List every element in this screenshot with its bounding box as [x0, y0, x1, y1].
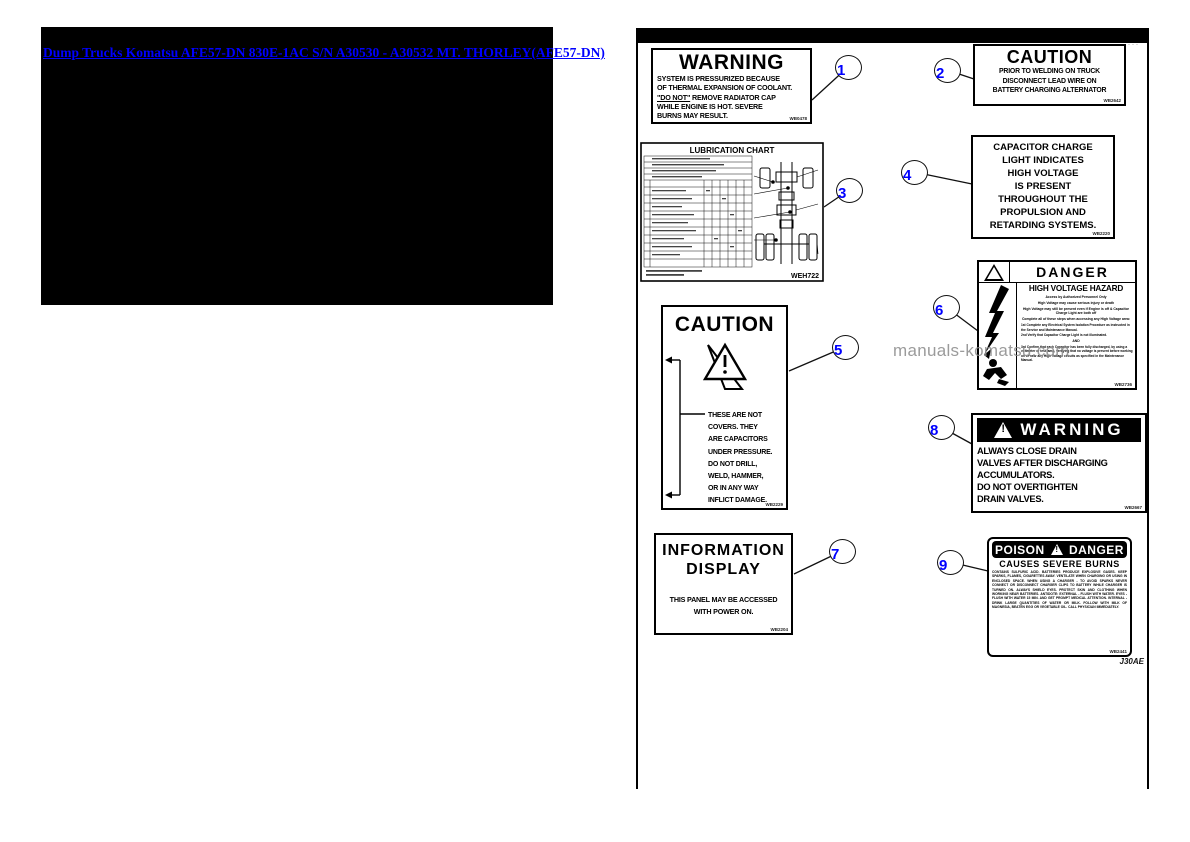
decal-text-line: THIS PANEL MAY BE ACCESSED — [658, 595, 789, 605]
decal-capacitor-charge: CAPACITOR CHARGE LIGHT INDICATES HIGH VO… — [971, 135, 1115, 239]
callout-8[interactable]: 8 — [928, 415, 955, 440]
decal-text-line: WITH POWER ON. — [658, 607, 789, 617]
decal-text-line: WHILE ENGINE IS HOT. SEVERE — [657, 102, 806, 111]
decal-text-line: DRAIN VALVES. — [977, 493, 1141, 505]
decal-lubrication-chart: LUBRICATION CHART — [640, 142, 824, 282]
decal-text-line: WELD, HAMMER, — [708, 471, 772, 483]
watermark: manuals-komatsu.com — [893, 341, 1070, 361]
callout-1[interactable]: 1 — [835, 55, 862, 80]
decal-caution-capacitors: CAUTION THESE ARE NOT COVERS. T — [661, 305, 788, 510]
lubrication-chart-drawing: LUBRICATION CHART — [640, 142, 824, 282]
decal-text-line: PRIOR TO WELDING ON TRUCK — [981, 67, 1118, 77]
decal-part-code: WB2220 — [1092, 231, 1110, 236]
burns-subtitle: CAUSES SEVERE BURNS — [992, 559, 1127, 569]
decal-text-line: DISCONNECT LEAD WIRE ON — [981, 77, 1118, 87]
hazard-subline: High Voltage may cause serious injury or… — [1019, 301, 1133, 306]
decal-text-line: PROPULSION AND — [975, 206, 1111, 219]
breadcrumb-link[interactable]: Dump Trucks Komatsu AFE57-DN 830E-1AC S/… — [43, 45, 552, 61]
decal-text-line: SYSTEM IS PRESSURIZED BECAUSE — [657, 74, 806, 83]
poison-title: POISON — [995, 543, 1045, 557]
caution-capacitors-text: THESE ARE NOT COVERS. THEY ARE CAPACITOR… — [708, 410, 772, 508]
chart-part-code: WEH722 — [791, 273, 819, 280]
hazard-paragraph: High Voltage may still be present even i… — [1019, 307, 1133, 316]
decal-text-line: THROUGHOUT THE — [975, 193, 1111, 206]
decal-text-line: VALVES AFTER DISCHARGING — [977, 457, 1141, 469]
sheet-left-border — [636, 43, 638, 789]
callout-6[interactable]: 6 — [933, 295, 960, 320]
decal-part-code: WB2642 — [1103, 98, 1121, 103]
hazard-step: 1st Complete any Electrical System Isola… — [1019, 323, 1133, 331]
decal-title: WARNING — [1020, 420, 1123, 440]
decal-text-line: THESE ARE NOT — [708, 410, 772, 422]
decal-text-line: DO NOT OVERTIGHTEN — [977, 481, 1141, 493]
decal-danger-high-voltage: DANGER HIGH VOLTAGE HAZARD Access by Aut… — [977, 260, 1137, 390]
callout-5[interactable]: 5 — [832, 335, 859, 360]
decal-text-line: HIGH VOLTAGE — [975, 167, 1111, 180]
decal-title: INFORMATION — [658, 541, 789, 560]
lightning-bolt-icon — [979, 283, 1017, 389]
warning-triangle-icon — [1051, 544, 1063, 555]
decal-title: DISPLAY — [658, 560, 789, 579]
callout-4[interactable]: 4 — [901, 160, 928, 185]
hazard-paragraph: Complete all of these steps when accessi… — [1019, 317, 1133, 322]
hazard-step: 2nd Verify that Capacitor Charge Light i… — [1019, 333, 1133, 337]
decal-part-code: WB2667 — [1124, 505, 1142, 510]
warning-triangle-icon — [994, 422, 1012, 438]
do-not-underlined: "DO NOT" — [657, 93, 690, 102]
decal-text-line: OF THERMAL EXPANSION OF COOLANT. — [657, 83, 806, 92]
decal-text-line: UNDER PRESSURE. — [708, 447, 772, 459]
hazard-subline: Access by Authorized Personnel Only — [1019, 295, 1133, 300]
sheet-code: J30AE — [1098, 657, 1144, 666]
decal-information-display: INFORMATION DISPLAY THIS PANEL MAY BE AC… — [654, 533, 793, 635]
decal-text-line: RETARDING SYSTEMS. — [975, 219, 1111, 232]
decal-warning-radiator: WARNING SYSTEM IS PRESSURIZED BECAUSE OF… — [651, 48, 812, 124]
decal-part-code: WB2736 — [1114, 382, 1132, 387]
decal-text-line: BATTERY CHARGING ALTERNATOR — [981, 86, 1118, 96]
warning-triangle-icon — [979, 262, 1010, 282]
decal-caution-welding: CAUTION PRIOR TO WELDING ON TRUCK DISCON… — [973, 44, 1126, 106]
decal-text-line: LIGHT INDICATES — [975, 154, 1111, 167]
decal-text-line: BURNS MAY RESULT. — [657, 111, 806, 120]
decal-title: CAUTION — [981, 47, 1118, 67]
decal-part-code: WB2204 — [770, 627, 788, 632]
decal-text-line: CAPACITOR CHARGE — [975, 141, 1111, 154]
sheet-right-border — [1147, 43, 1149, 789]
decal-text-line: ACCUMULATORS. — [977, 469, 1141, 481]
decal-text-line: IS PRESENT — [975, 180, 1111, 193]
decal-text-line: COVERS. THEY — [708, 422, 772, 434]
callout-3[interactable]: 3 — [836, 178, 863, 203]
battery-warning-text: CONTAINS SULFURIC ACID. BATTERIES PRODUC… — [992, 570, 1127, 610]
poison-danger-header: POISON DANGER — [992, 541, 1127, 558]
decal-text-line: REMOVE RADIATOR CAP — [690, 93, 776, 102]
decal-text-line: DO NOT DRILL, — [708, 459, 772, 471]
decal-text-line: ARE CAPACITORS — [708, 434, 772, 446]
decal-title: DANGER — [1010, 264, 1135, 280]
decal-text-line: "DO NOT" REMOVE RADIATOR CAP — [657, 93, 806, 102]
danger-text-column: HIGH VOLTAGE HAZARD Access by Authorized… — [1017, 283, 1135, 389]
decal-part-code: WB2441 — [1109, 649, 1127, 654]
decal-part-code: WB2229 — [765, 502, 783, 507]
chart-title: LUBRICATION CHART — [690, 146, 775, 155]
hazard-heading: HIGH VOLTAGE HAZARD — [1019, 284, 1133, 293]
decal-text-line: INFLICT DAMAGE. — [708, 495, 772, 507]
callout-9[interactable]: 9 — [937, 550, 964, 575]
danger-header: DANGER — [979, 262, 1135, 283]
decal-part-code: WB0478 — [789, 116, 807, 121]
decal-warning-drain-valves: WARNING ALWAYS CLOSE DRAIN VALVES AFTER … — [971, 413, 1147, 513]
callout-2[interactable]: 2 — [934, 58, 961, 83]
header-black-box: Dump Trucks Komatsu AFE57-DN 830E-1AC S/… — [41, 27, 553, 305]
decal-title: WARNING — [657, 51, 806, 74]
decal-text-line: OR IN ANY WAY — [708, 483, 772, 495]
sheet-top-bar — [636, 28, 1149, 43]
manual-page: Dump Trucks Komatsu AFE57-DN 830E-1AC S/… — [0, 0, 1190, 842]
callout-7[interactable]: 7 — [829, 539, 856, 564]
decal-text-line: ALWAYS CLOSE DRAIN — [977, 445, 1141, 457]
decal-poison-danger: POISON DANGER CAUSES SEVERE BURNS CONTAI… — [987, 537, 1132, 657]
warning-header-bar: WARNING — [977, 418, 1141, 442]
danger-title: DANGER — [1069, 543, 1124, 557]
